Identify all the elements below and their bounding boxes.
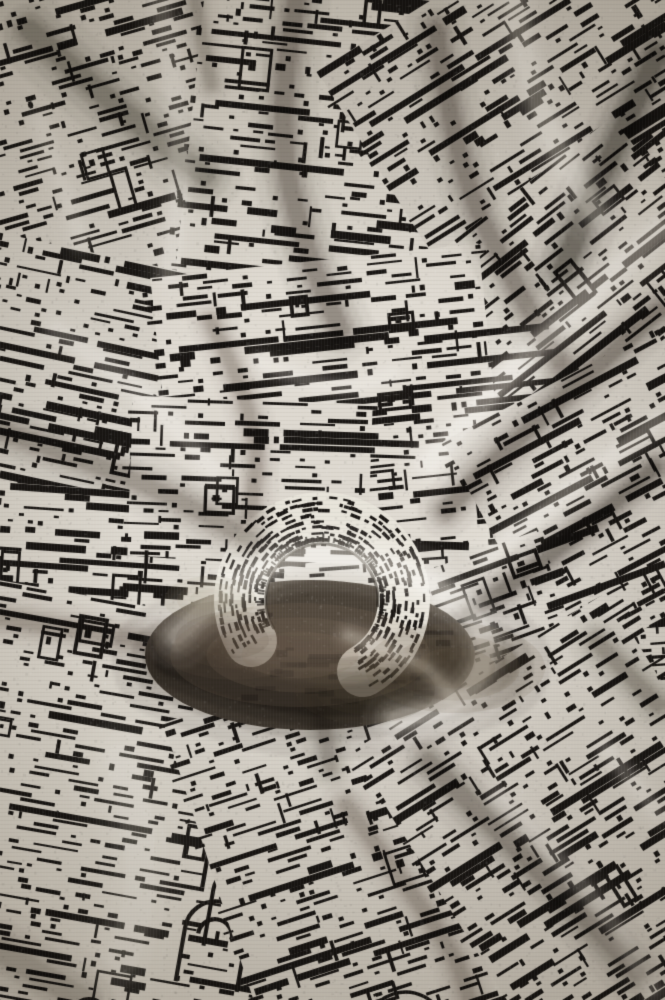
fabric-photo: Close-up photograph of a black and white…: [0, 0, 665, 1000]
fabric-photo-canvas: [0, 0, 665, 1000]
